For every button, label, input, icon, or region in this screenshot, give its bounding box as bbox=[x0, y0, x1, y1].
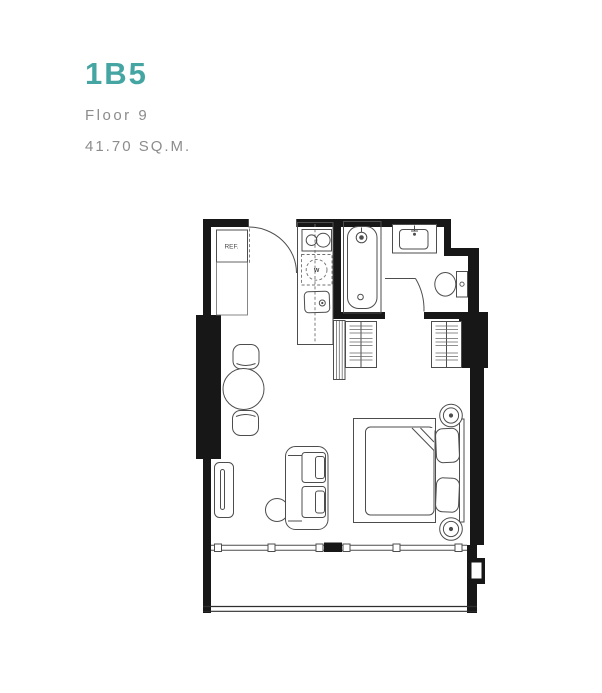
entrance-door-swing bbox=[249, 219, 297, 273]
dining-stool-bottom bbox=[233, 411, 259, 436]
unit-code: 1B5 bbox=[85, 58, 191, 89]
plan-header: 1B5 Floor 9 41.70 SQ.M. bbox=[85, 58, 191, 155]
balcony-railing bbox=[203, 607, 477, 612]
dining-table bbox=[223, 369, 264, 410]
toilet bbox=[435, 272, 468, 298]
pillow-top bbox=[435, 428, 459, 463]
floor-plan-page: 1B5 Floor 9 41.70 SQ.M. bbox=[0, 0, 602, 693]
washing-machine: W bbox=[302, 255, 333, 286]
headboard bbox=[460, 419, 465, 522]
unit-area: 41.70 SQ.M. bbox=[85, 138, 191, 155]
unit-floor: Floor 9 bbox=[85, 107, 191, 124]
kitchen-counter bbox=[298, 223, 334, 345]
bedside-lamp-bottom bbox=[440, 518, 463, 541]
stove bbox=[302, 230, 332, 252]
refrigerator-label: REF. bbox=[224, 244, 238, 251]
sofa bbox=[286, 447, 329, 530]
bedside-lamp-top bbox=[440, 404, 463, 427]
vanity-sink bbox=[393, 225, 437, 254]
pillow-bottom bbox=[435, 478, 459, 513]
entry-counter bbox=[217, 262, 248, 315]
louver-panel bbox=[334, 321, 346, 380]
kitchen-sink bbox=[304, 291, 330, 313]
wardrobe-right bbox=[432, 322, 462, 368]
balcony-sliding-door bbox=[211, 543, 467, 553]
washer-label: W bbox=[314, 268, 320, 274]
refrigerator: REF. bbox=[217, 229, 250, 264]
bathtub bbox=[344, 222, 382, 314]
dining-stool-top bbox=[233, 345, 259, 370]
bathroom-door-swing bbox=[385, 279, 424, 312]
wardrobe-left bbox=[346, 322, 377, 368]
service-niche bbox=[469, 558, 485, 584]
